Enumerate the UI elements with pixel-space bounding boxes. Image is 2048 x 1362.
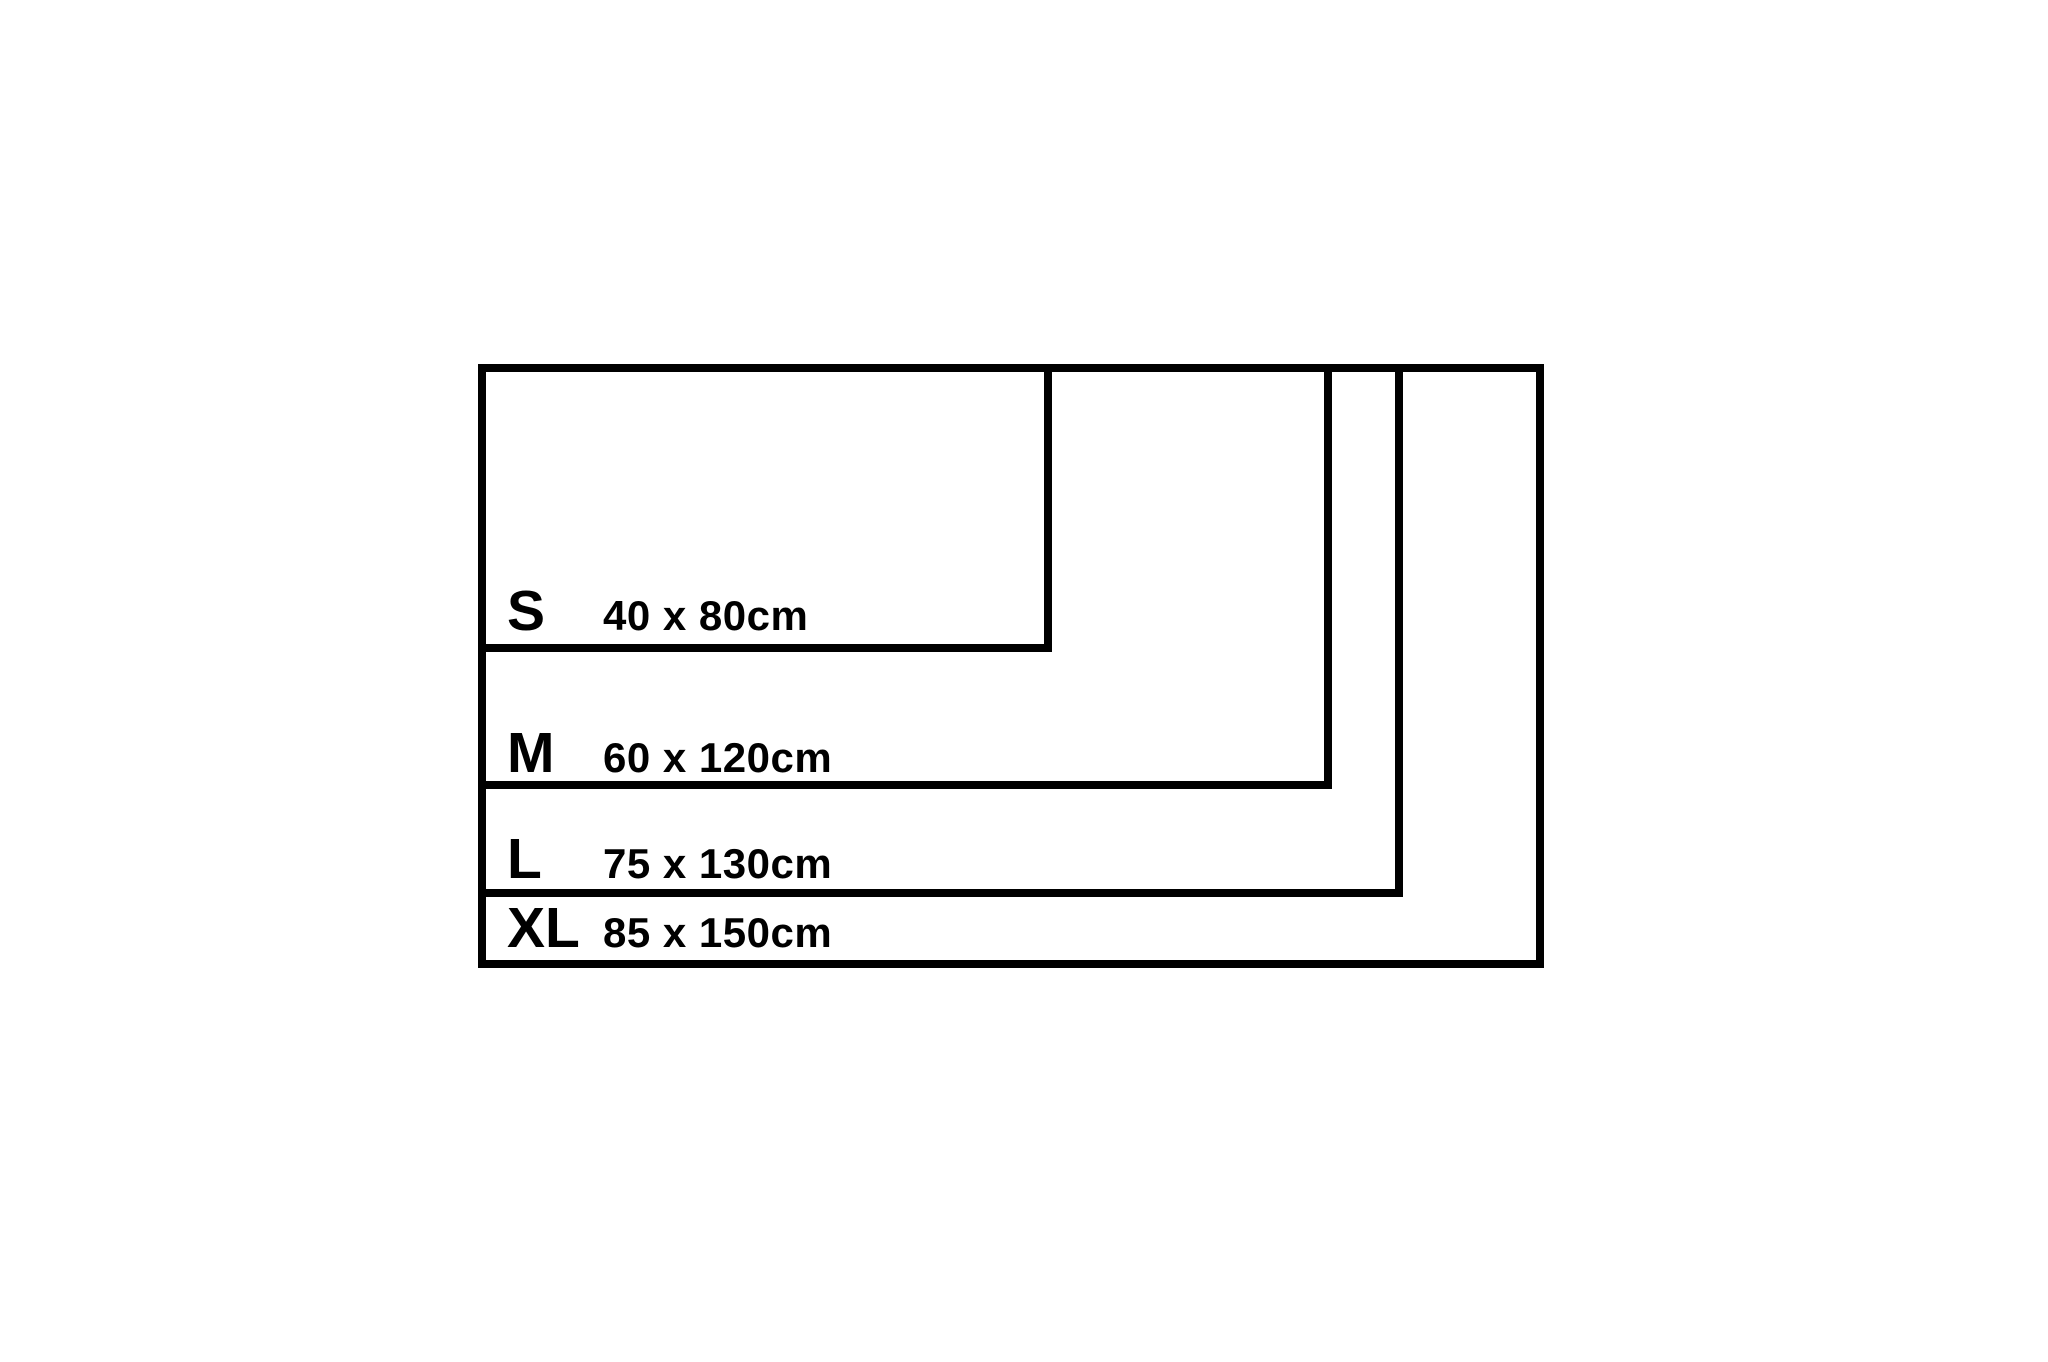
size-label-row-xl: XL 85 x 150cm: [507, 896, 832, 962]
size-chart-diagram: S 40 x 80cm M 60 x 120cm L 75 x 130cm XL…: [0, 0, 2048, 1362]
size-label-row-s: S 40 x 80cm: [507, 579, 808, 645]
size-code-l: L: [507, 827, 603, 893]
size-code-xl: XL: [507, 896, 603, 962]
size-dimensions-l: 75 x 130cm: [603, 840, 832, 888]
size-dimensions-xl: 85 x 150cm: [603, 909, 832, 957]
size-label-row-m: M 60 x 120cm: [507, 721, 832, 787]
size-dimensions-m: 60 x 120cm: [603, 734, 832, 782]
size-label-row-l: L 75 x 130cm: [507, 827, 832, 893]
size-dimensions-s: 40 x 80cm: [603, 592, 808, 640]
size-code-m: M: [507, 721, 603, 787]
size-code-s: S: [507, 579, 603, 645]
